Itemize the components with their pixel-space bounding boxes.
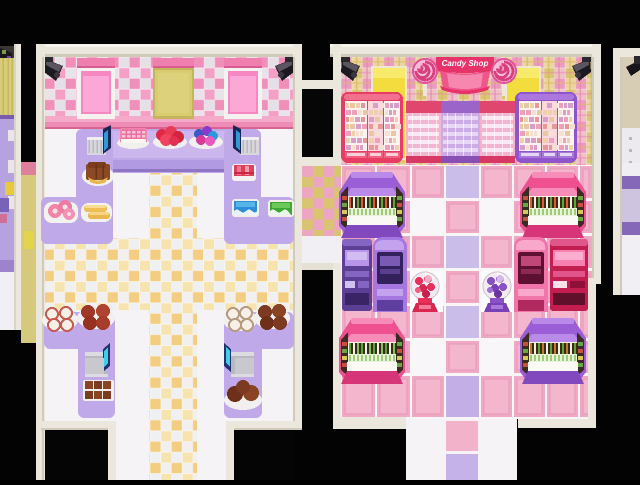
svg-text:Candy Shop: Candy Shop bbox=[442, 59, 489, 68]
